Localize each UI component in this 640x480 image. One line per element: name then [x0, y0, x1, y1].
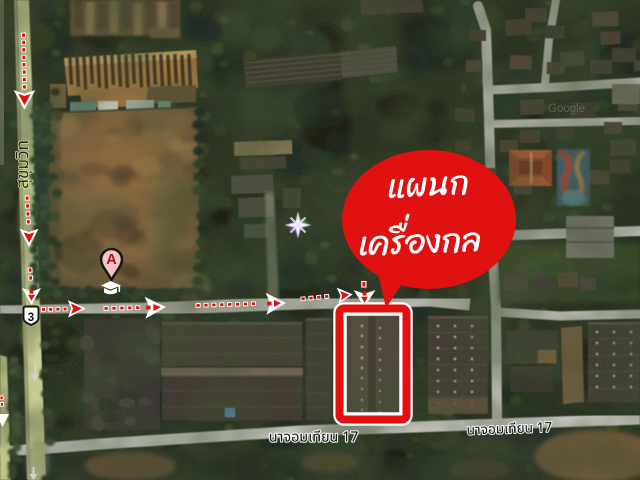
svg-text:A: A	[106, 252, 117, 268]
svg-text:Google: Google	[548, 103, 585, 115]
svg-text:3: 3	[28, 312, 34, 324]
